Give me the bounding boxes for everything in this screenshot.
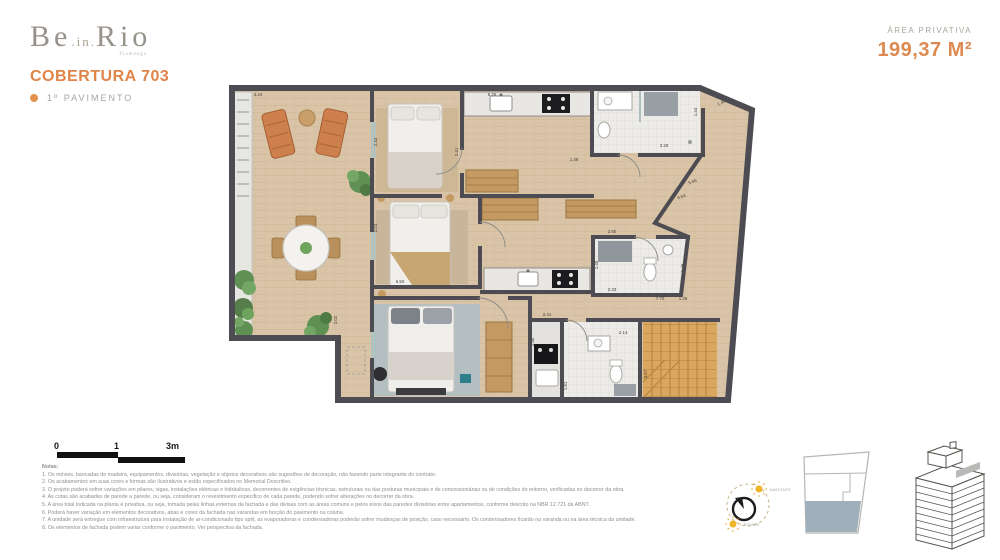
dimension-label: 6.26 bbox=[488, 92, 497, 97]
dimension-label: 2.31 bbox=[543, 312, 552, 317]
dimension-label: 7.70 bbox=[656, 296, 665, 301]
note-item: 1. Os móveis, bancadas de madeira, equip… bbox=[42, 472, 992, 479]
notes-list: 1. Os móveis, bancadas de madeira, equip… bbox=[42, 472, 992, 532]
note-item: 6. Poderá haver variação em elementos de… bbox=[42, 510, 992, 517]
dimension-label: 2.43 bbox=[373, 137, 378, 146]
dimension-label: 3.24 bbox=[254, 92, 263, 97]
dimension-label: 3.07 bbox=[643, 369, 648, 378]
dimension-label: 1.40 bbox=[594, 260, 599, 269]
dimension-label: 1.49 bbox=[570, 157, 579, 162]
staircase bbox=[643, 322, 717, 398]
notes: Notas: 1. Os móveis, bancadas de madeira… bbox=[42, 464, 992, 532]
scale-bar: 0 1 3m bbox=[54, 441, 185, 463]
notes-title: Notas: bbox=[42, 464, 992, 471]
dimension-label: 3.28 bbox=[660, 143, 669, 148]
dimension-label: 2.41 bbox=[454, 147, 459, 156]
note-item: 7. A unidade será entregue com infraestr… bbox=[42, 517, 992, 524]
dimension-label: 2.80 bbox=[608, 229, 617, 234]
bedroom-1 bbox=[376, 104, 458, 202]
note-item: 2. Os acabamentos em suas cores e formas… bbox=[42, 479, 992, 486]
dimension-label: 2.02 bbox=[333, 315, 338, 324]
dimension-label: 1.44 bbox=[693, 107, 698, 116]
dimension-label: 2.33 bbox=[608, 287, 617, 292]
hall-console-icon bbox=[566, 200, 636, 218]
side-table-icon bbox=[299, 110, 315, 126]
dimension-label: 1.26 bbox=[679, 296, 688, 301]
scale-3m: 3m bbox=[166, 441, 179, 451]
dimension-label: 1.45 bbox=[680, 263, 685, 272]
note-item: 4. As cotas são acabadas de parede a par… bbox=[42, 494, 992, 501]
kitchen-counter-top bbox=[464, 92, 592, 116]
scale-0: 0 bbox=[54, 441, 59, 451]
floorplan-sheet: { "header": { "logo_be": "Be", "logo_in"… bbox=[0, 0, 1000, 560]
dimension-label: 2.40 bbox=[530, 337, 535, 346]
dimension-label: 2.14 bbox=[619, 330, 628, 335]
dimension-label: 6.50 bbox=[396, 279, 405, 284]
dimension-label: 2.03 bbox=[373, 223, 378, 232]
note-item: 3. O projeto poderá sofrer variações em … bbox=[42, 487, 992, 494]
sideboard-icon bbox=[466, 170, 518, 192]
scale-1: 1 bbox=[114, 441, 119, 451]
note-item: 5. A área total indicada na planta é pri… bbox=[42, 502, 992, 509]
note-item: 8. Os elementos de fachada podem variar … bbox=[42, 525, 992, 532]
dimension-label: 1.81 bbox=[563, 381, 568, 390]
kitchen-counter-mid bbox=[484, 268, 590, 292]
